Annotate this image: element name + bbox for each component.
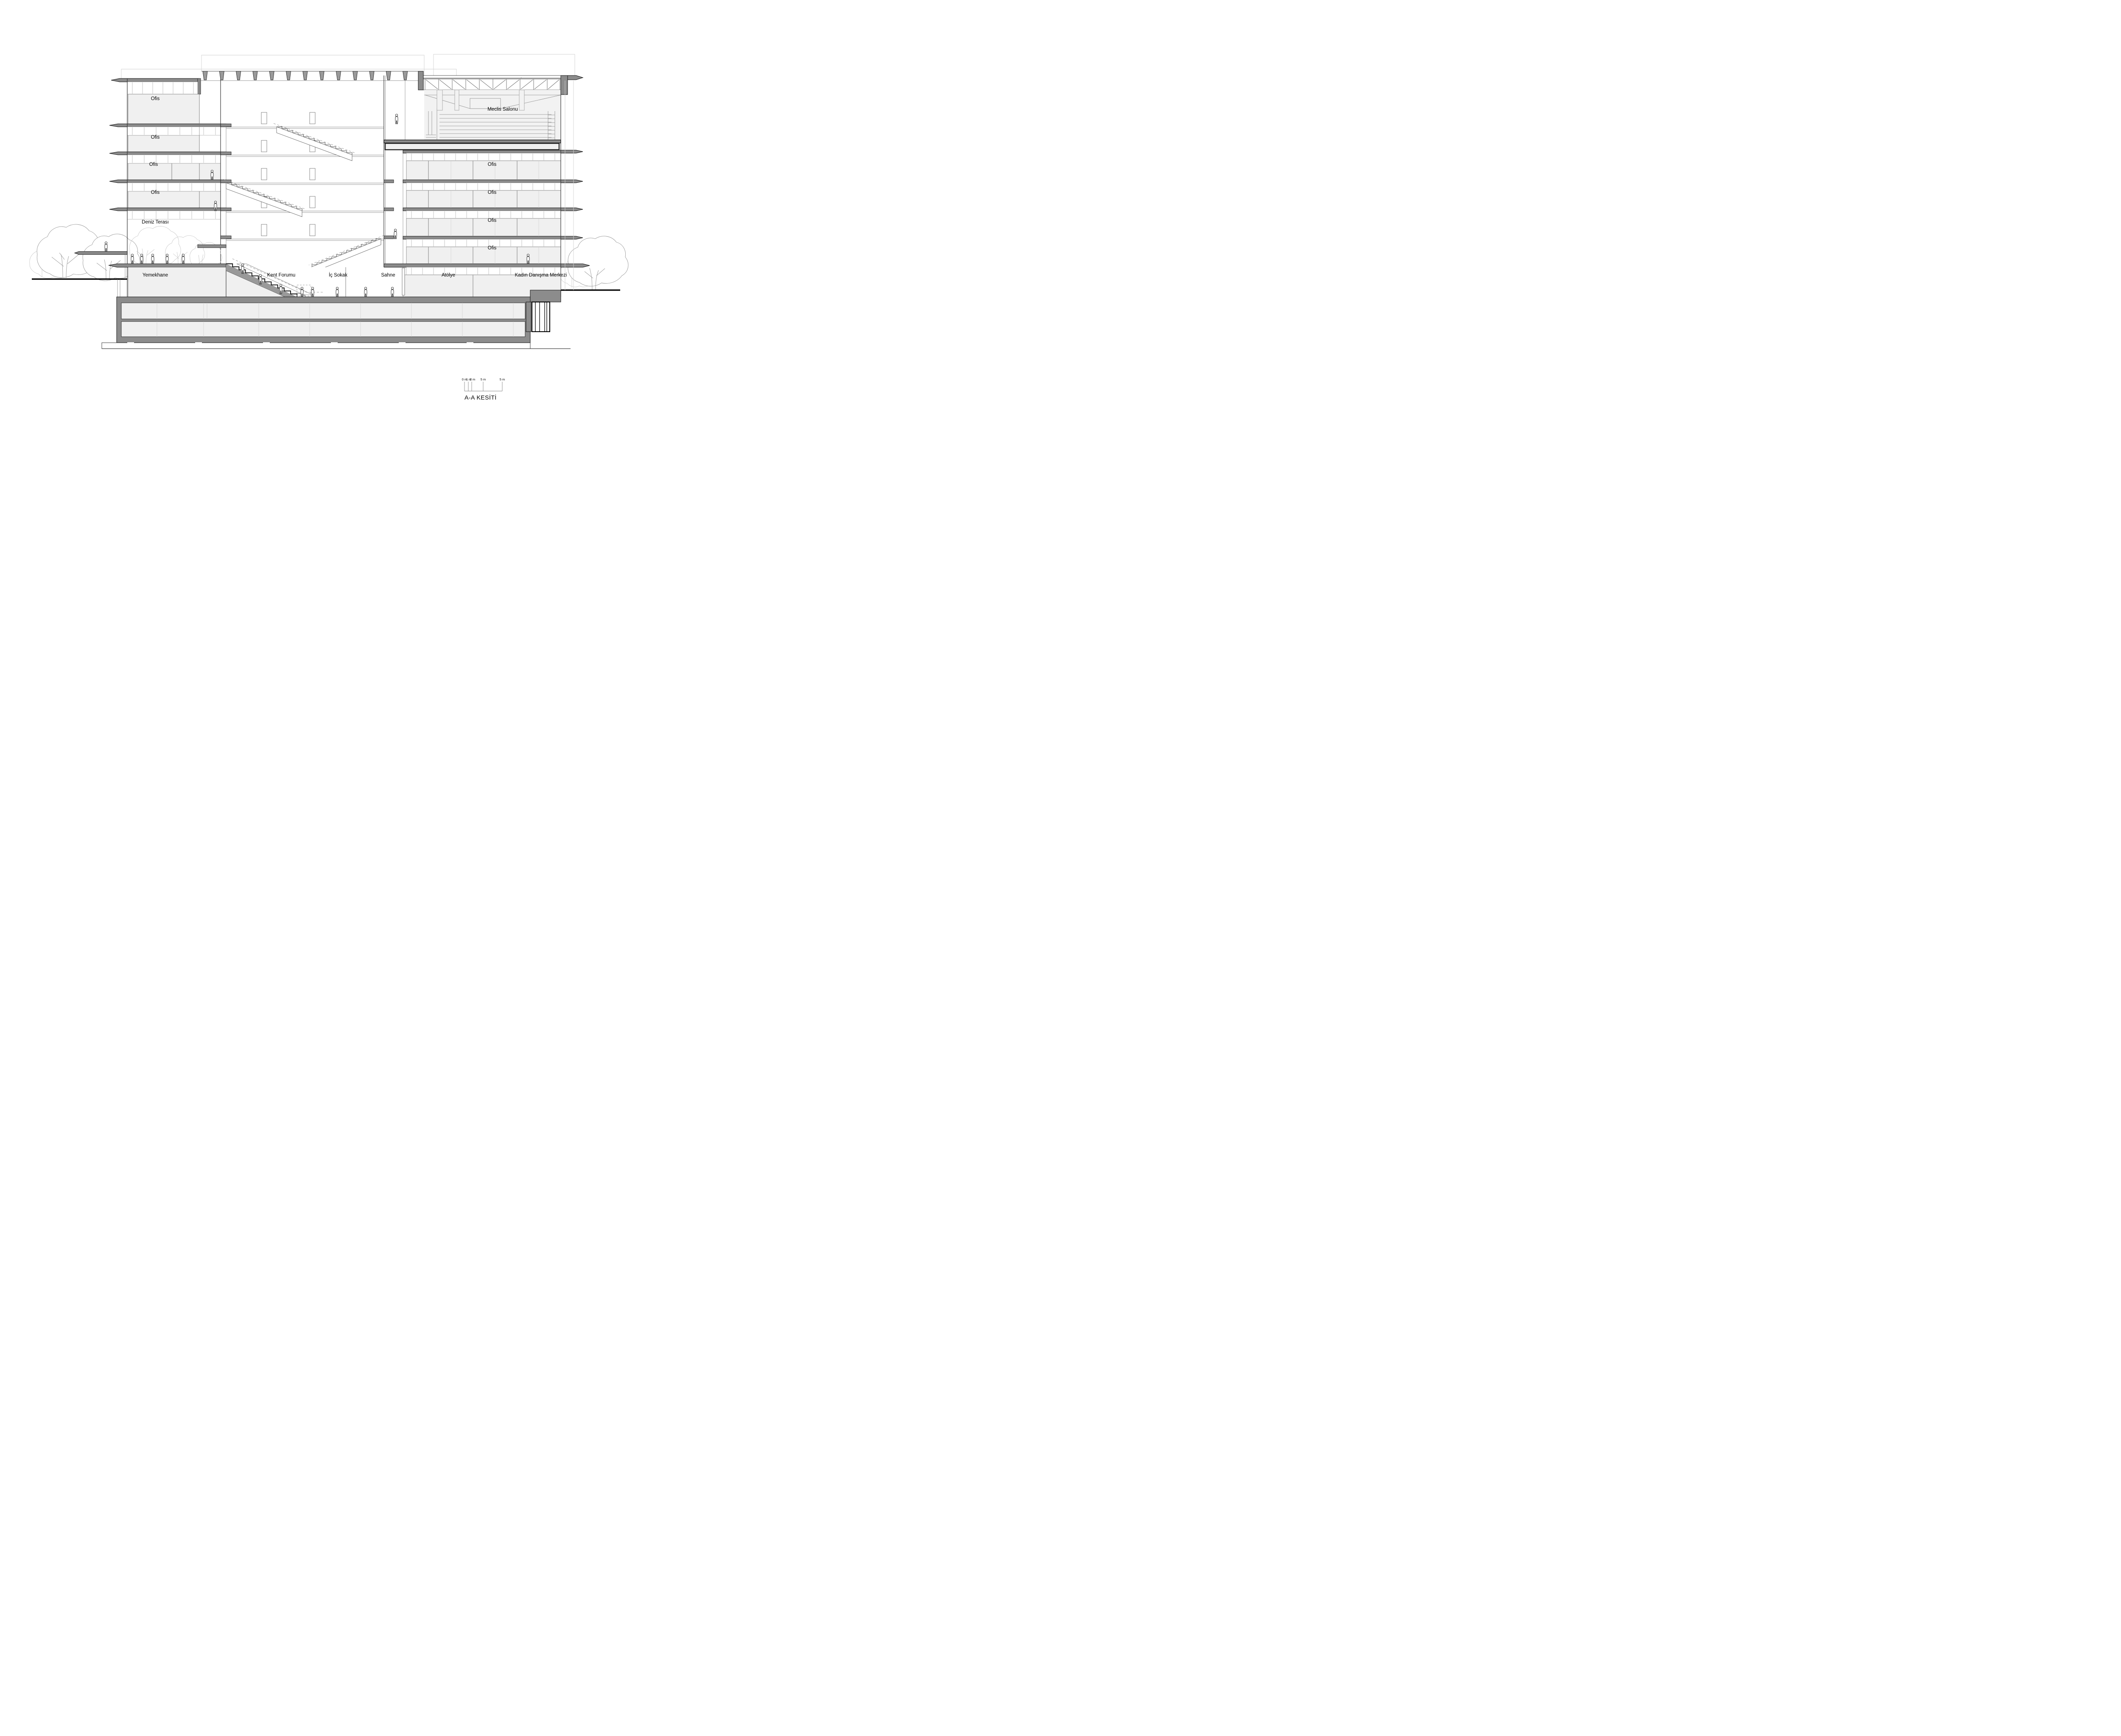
scale-tick-2m: 2 m [470, 377, 476, 381]
atrium [221, 75, 405, 273]
trees-left [30, 224, 140, 297]
room-label-ofis-l4: Ofis [151, 190, 160, 195]
room-label-ofis-r2: Ofis [488, 190, 497, 195]
room-label-atolye: Atölye [442, 273, 455, 278]
trees-right [550, 236, 628, 290]
basement [117, 290, 561, 343]
room-label-ofis-r3: Ofis [488, 218, 497, 223]
meclis-salonu [384, 90, 583, 153]
room-label-yemekhane: Yemekhane [143, 273, 168, 278]
room-label-kadin-danisma: Kadın Danışma Merkezi [515, 273, 567, 278]
room-label-ofis-r1: Ofis [488, 162, 497, 167]
room-label-ofis-r4: Ofis [488, 246, 497, 251]
atrium-stair-flight-3 [309, 235, 384, 273]
room-label-ic-sokak: İç Sokak [329, 272, 347, 278]
tree-right [568, 236, 628, 286]
room-label-ofis-l1: Ofis [151, 96, 160, 101]
scale-tick-5m: 5 m [481, 377, 486, 381]
room-label-sahne: Sahne [381, 273, 395, 278]
room-label-deniz-terasi: Deniz Terası [142, 220, 169, 225]
room-label-meclis-salonu: Meclis Salonu [487, 107, 518, 112]
ground-hatch [102, 342, 571, 349]
scale-bar: 0 m 1 m 2 m 5 m 5 m [462, 377, 505, 391]
scale-tick-5m-2: 5 m [500, 377, 505, 381]
room-label-ofis-l2: Ofis [151, 135, 160, 140]
room-label-ofis-l3: Ofis [149, 162, 158, 167]
roof-fins [199, 71, 423, 90]
section-drawing-svg: #person circle,#person path{fill:#fff;st… [0, 0, 655, 463]
room-label-kent-forumu: Kent Forumu [267, 273, 295, 278]
drawing-canvas: #person circle,#person path{fill:#fff;st… [0, 0, 655, 463]
drawing-title: A-A KESİTİ [464, 394, 497, 401]
